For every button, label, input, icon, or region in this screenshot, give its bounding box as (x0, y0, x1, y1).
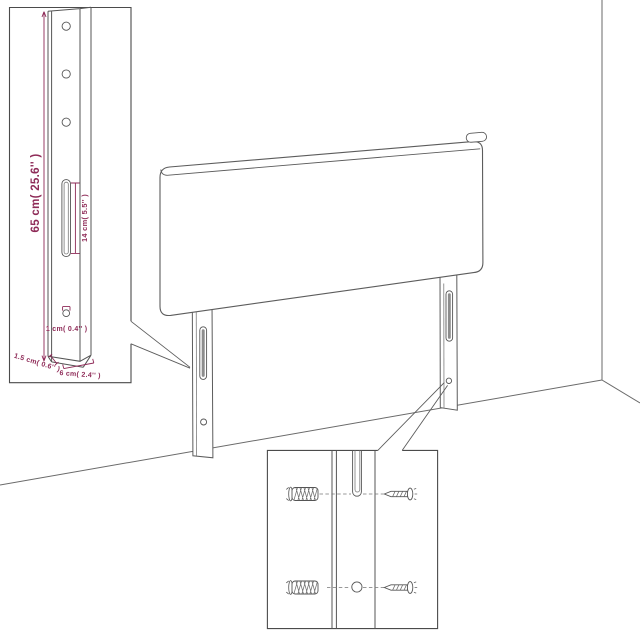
slot-length-label: 14 cm( 5.5'' ) (80, 194, 89, 242)
inset-leg-hole-bottom (62, 118, 70, 126)
screw-drive-marks (414, 582, 417, 593)
leg-thickness-label: 1.5 cm( 0.6'' ) (13, 353, 61, 374)
screw-head (407, 488, 412, 500)
diagram-canvas: 65 cm( 25.6'' ) 14 cm( 5.5'' ) 1 cm( 0.4… (0, 0, 640, 640)
inset-callout-lines (378, 383, 448, 451)
leg-width-label: 6 cm( 2.4'' ) (59, 370, 101, 380)
leg-width-dimension-line (63, 359, 94, 369)
wall-plug-icon (286, 487, 318, 501)
inset-callout-lines (131, 321, 190, 368)
right-leg-hole (446, 378, 451, 383)
hole-diameter-label: 1 cm( 0.4'' ) (46, 326, 87, 333)
inset-leg-edges (332, 450, 375, 628)
wall-plug-icon (286, 581, 318, 595)
panel-corner-cap (466, 132, 487, 143)
inset-leg-small-hole (63, 310, 70, 317)
screw-head (407, 582, 412, 594)
leg-height-label: 65 cm( 25.6'' ) (30, 153, 42, 232)
floor-line-left (0, 380, 602, 485)
inset-leg-hole-middle (62, 70, 70, 78)
right-leg-slot-inner (448, 293, 451, 339)
left-leg-slot-inner (202, 329, 205, 377)
slot-length-dimension-line (71, 183, 80, 253)
product-diagram: 65 cm( 25.6'' ) 14 cm( 5.5'' ) 1 cm( 0.4… (0, 0, 640, 640)
inset-leg-slot (62, 180, 71, 257)
screw-drive-marks (414, 488, 417, 499)
inset-hole (352, 582, 362, 592)
leg-height-dimension-line (42, 12, 46, 361)
inset-leg-hole-top (62, 22, 70, 30)
hardware-detail-inset (267, 383, 447, 629)
screw-icon (384, 582, 417, 594)
left-leg-hole (201, 419, 207, 425)
headboard-panel (160, 142, 483, 316)
floor-line-right (602, 380, 640, 403)
screw-icon (384, 488, 417, 500)
inset-slot-inner (355, 450, 360, 492)
